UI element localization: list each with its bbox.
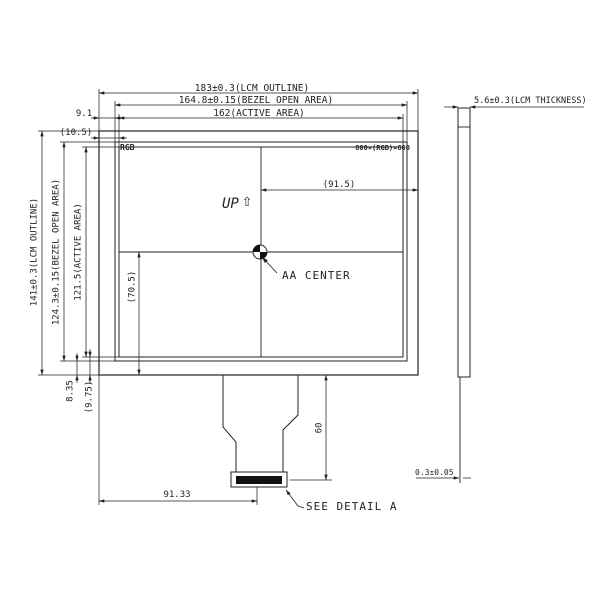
lcm-mechanical-drawing: 183±0.3(LCM OUTLINE) 164.8±0.15(BEZEL OP… bbox=[0, 0, 600, 600]
connector bbox=[231, 472, 287, 487]
fpc-outline-right bbox=[283, 375, 298, 472]
fpc-outline-left bbox=[223, 375, 236, 472]
dim-fpc-length-label: 60 bbox=[316, 423, 325, 434]
dim-bottom-offset-active-label: (9.75) bbox=[86, 381, 95, 414]
up-arrow-icon: ⇧ bbox=[242, 193, 252, 210]
connector-contact-bar bbox=[236, 476, 282, 484]
side-view-rect bbox=[458, 108, 470, 377]
rgb-orientation-label: RGB bbox=[120, 144, 134, 152]
dim-active-height-label: 121.5(ACTIVE AREA) bbox=[75, 203, 84, 301]
up-label: UP bbox=[222, 197, 239, 211]
dim-bezel-height-label: 124.3±0.15(BEZEL OPEN AREA) bbox=[53, 179, 62, 325]
dimension-lines bbox=[42, 93, 584, 508]
dim-active-width-label: 162(ACTIVE AREA) bbox=[213, 109, 305, 119]
dim-center-to-right-label: (91.5) bbox=[323, 181, 356, 190]
see-detail-a-label: SEE DETAIL A bbox=[306, 501, 397, 512]
dim-left-offset-bezel-label: 9.1 bbox=[76, 110, 92, 119]
dim-center-to-bottom-label: (70.5) bbox=[129, 271, 138, 304]
resolution-label: 800×(RGB)×600 bbox=[355, 145, 410, 152]
dim-bezel-width-label: 164.8±0.15(BEZEL OPEN AREA) bbox=[179, 96, 333, 106]
dim-outline-width-label: 183±0.3(LCM OUTLINE) bbox=[195, 84, 309, 94]
dim-thickness-label: 5.6±0.3(LCM THICKNESS) bbox=[474, 97, 587, 106]
dim-fpc-thickness-label: 0.3±0.05 bbox=[415, 469, 454, 477]
dim-left-offset-active-label: (10.5) bbox=[60, 129, 93, 138]
dim-outline-height-label: 141±0.3(LCM OUTLINE) bbox=[31, 198, 40, 306]
dim-bottom-offset-bezel-label: 8.35 bbox=[67, 380, 76, 402]
dim-connector-center-label: 91.33 bbox=[163, 491, 190, 500]
aa-center-mark bbox=[253, 245, 277, 273]
aa-center-label: AA CENTER bbox=[282, 270, 351, 281]
